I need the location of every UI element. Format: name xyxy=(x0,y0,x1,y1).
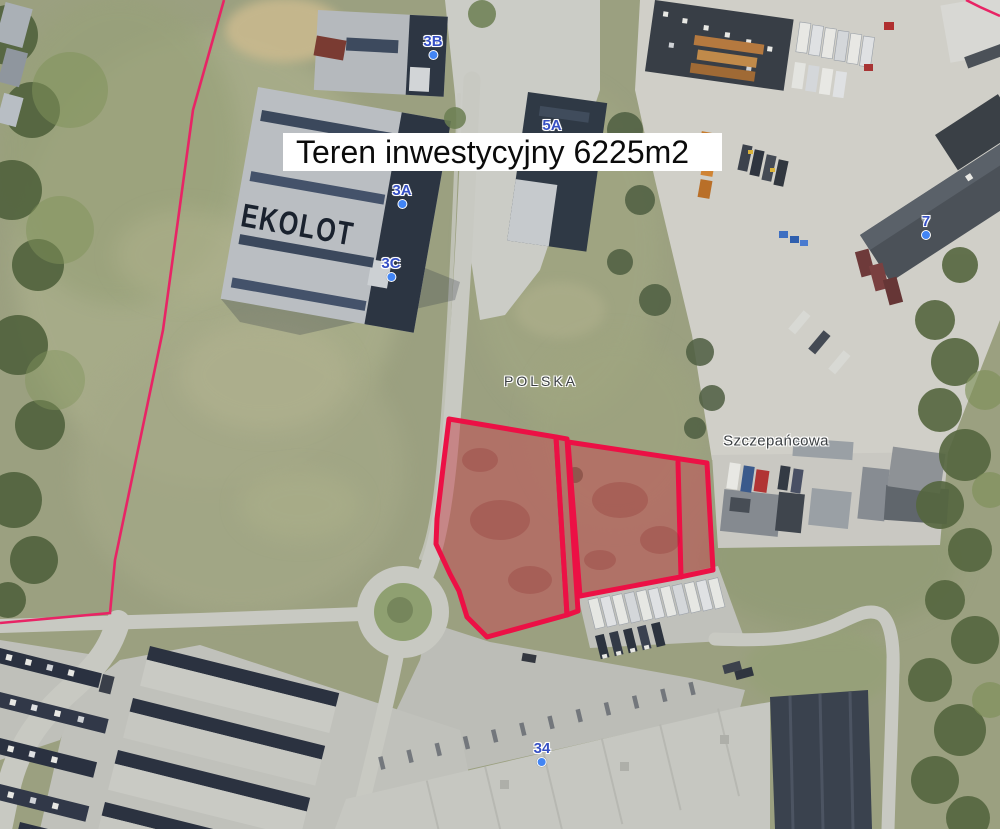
navy-building-bottomright xyxy=(770,690,872,829)
ekolot-building: EKOLOT xyxy=(221,87,451,333)
title-banner: Teren inwestycyjny 6225m2 xyxy=(283,133,722,171)
title-banner-text: Teren inwestycyjny 6225m2 xyxy=(296,134,689,171)
aerial-scene: EKOLOT xyxy=(0,0,1000,829)
roundabout xyxy=(357,566,449,658)
satellite-map: EKOLOT xyxy=(0,0,1000,829)
parcel-right xyxy=(568,442,713,596)
parcel-divider xyxy=(678,462,681,577)
